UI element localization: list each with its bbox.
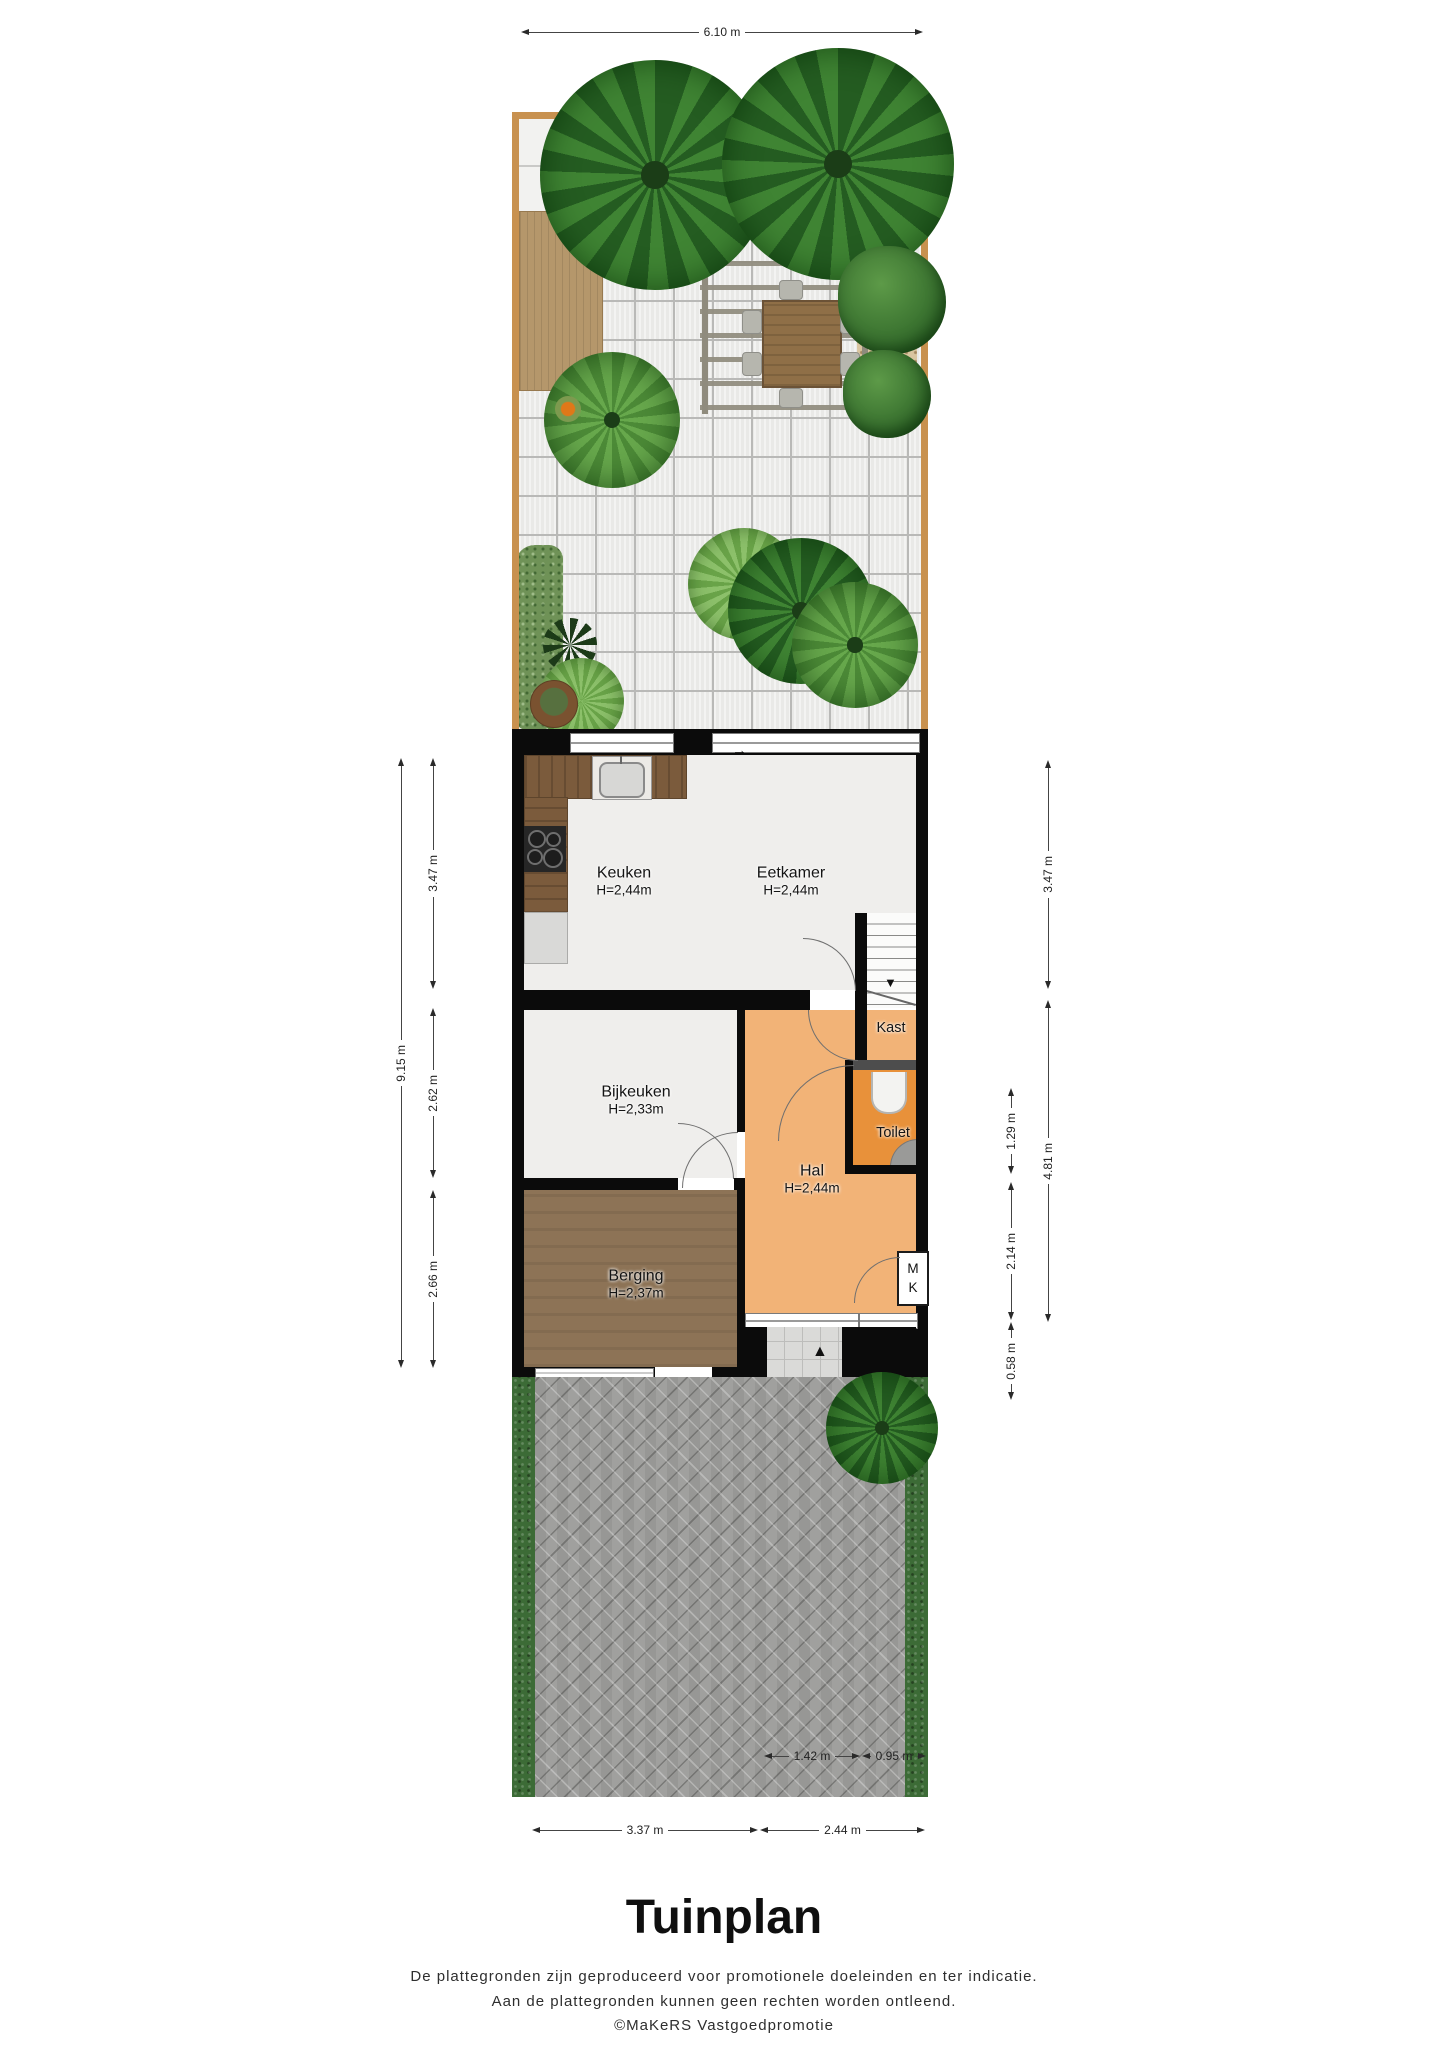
entrance-arrow-icon: ▲ xyxy=(812,1343,828,1361)
toilet-fixture xyxy=(871,1072,907,1114)
dimension-bottom-berging: 3.37 m xyxy=(532,1822,758,1838)
room-name: Keuken xyxy=(596,864,651,882)
berging-door-opening xyxy=(655,1367,712,1377)
arrow-left-icon xyxy=(521,29,529,35)
garden-dining-table xyxy=(762,300,842,388)
arrow-up-icon xyxy=(398,758,404,766)
garden-chair xyxy=(742,352,762,376)
dimension-top-width: 6.10 m xyxy=(521,24,923,40)
keuken-label: Keuken H=2,44m xyxy=(596,864,651,897)
eetkamer-label: Eetkamer H=2,44m xyxy=(757,864,825,897)
arrow-up-icon xyxy=(430,1008,436,1016)
arrow-down-icon xyxy=(398,1360,404,1368)
kast-label: Kast xyxy=(876,1020,905,1036)
stairs-down-arrow-icon: ▼ xyxy=(884,975,897,990)
toilet-bottom-wall xyxy=(845,1165,916,1174)
arrow-right-icon xyxy=(917,1827,925,1833)
room-name: Bijkeuken xyxy=(601,1083,670,1101)
dimension-right-upper: 3.47 m xyxy=(1040,760,1056,989)
dimension-left-keuken: 3.47 m xyxy=(425,758,441,989)
kitchen-cabinet xyxy=(524,912,568,964)
dimension-label: 6.10 m xyxy=(699,25,746,39)
house-left-wall xyxy=(512,755,524,1377)
disclaimer-line-2: Aan de plattegronden kunnen geen rechten… xyxy=(0,1993,1448,2010)
arrow-up-icon xyxy=(1008,1088,1014,1096)
arrow-up-icon xyxy=(1045,1000,1051,1008)
arrow-up-icon xyxy=(1045,760,1051,768)
dimension-label: 3.47 m xyxy=(1041,851,1055,898)
planter-pot xyxy=(530,680,578,728)
dimension-bottom-hal: 2.44 m xyxy=(760,1822,925,1838)
arrow-down-icon xyxy=(430,1170,436,1178)
shrub xyxy=(838,246,946,354)
room-name: Hal xyxy=(784,1162,839,1180)
dimension-label: 2.44 m xyxy=(819,1823,866,1837)
hal-left-wall-lower xyxy=(737,1185,745,1377)
dimension-label: 2.62 m xyxy=(426,1070,440,1117)
arrow-down-icon xyxy=(1045,1314,1051,1322)
garden-chair xyxy=(779,388,803,408)
kast-toilet-wall xyxy=(845,1060,916,1070)
dimension-right-lower: 4.81 m xyxy=(1040,1000,1056,1322)
arrow-left-icon xyxy=(760,1827,768,1833)
palm-tree xyxy=(826,1372,938,1484)
meterkast-label-m: M xyxy=(907,1260,918,1279)
berging-label: Berging H=2,37m xyxy=(608,1267,663,1300)
keuken-window xyxy=(570,733,674,753)
room-height: H=2,44m xyxy=(784,1180,839,1195)
arrow-up-icon xyxy=(1008,1322,1014,1330)
porch-side-wall xyxy=(842,1327,916,1377)
arrow-down-icon xyxy=(1008,1312,1014,1320)
dimension-left-bijkeuken: 2.62 m xyxy=(425,1008,441,1178)
dimension-right-hal: 2.14 m xyxy=(1003,1182,1019,1320)
arrow-down-icon xyxy=(1045,981,1051,989)
arrow-left-icon xyxy=(532,1827,540,1833)
burner xyxy=(543,848,563,868)
sink-tap xyxy=(620,756,622,764)
dimension-label: 3.37 m xyxy=(622,1823,669,1837)
arrow-down-icon xyxy=(1008,1166,1014,1174)
arrow-up-icon xyxy=(1008,1182,1014,1190)
garden-fence-left xyxy=(512,112,519,729)
keuken-bottom-wall xyxy=(512,990,810,1010)
room-height: H=2,33m xyxy=(601,1101,670,1116)
dimension-bottom-door: 1.42 m xyxy=(764,1748,860,1764)
kitchen-sink xyxy=(599,762,645,798)
palm-tree xyxy=(792,582,918,708)
arrow-down-icon xyxy=(430,1360,436,1368)
burner xyxy=(527,849,543,865)
dimension-left-berging: 2.66 m xyxy=(425,1190,441,1368)
hal-left-wall-upper xyxy=(737,990,745,1132)
dimension-left-outer: 9.15 m xyxy=(393,758,409,1368)
arrow-right-icon xyxy=(918,1753,926,1759)
bijkeuken-berging-wall xyxy=(512,1178,678,1190)
room-name: Kast xyxy=(876,1020,905,1036)
dimension-label: 3.47 m xyxy=(426,850,440,897)
flowering-plant xyxy=(555,396,581,422)
room-name: Toilet xyxy=(876,1125,910,1141)
dimension-label: 4.81 m xyxy=(1041,1138,1055,1185)
room-height: H=2,37m xyxy=(608,1285,663,1300)
dimension-label: 2.14 m xyxy=(1004,1228,1018,1275)
room-name: Berging xyxy=(608,1267,663,1285)
garden-chair xyxy=(779,280,803,300)
sliding-door-arrow-icon: → xyxy=(732,742,747,759)
meterkast-label-k: K xyxy=(908,1279,917,1298)
disclaimer-line-1: De plattegronden zijn geproduceerd voor … xyxy=(0,1968,1448,1985)
dimension-label: 9.15 m xyxy=(394,1040,408,1087)
entrance-porch xyxy=(767,1327,842,1377)
porch-side-wall xyxy=(745,1327,767,1377)
arrow-down-icon xyxy=(1008,1392,1014,1400)
arrow-right-icon xyxy=(915,29,923,35)
meterkast: M K xyxy=(897,1251,929,1306)
toilet-label: Toilet xyxy=(876,1125,910,1141)
arrow-left-icon xyxy=(764,1753,772,1759)
tuinplan-floorplan: 6.10 m ▼ xyxy=(0,0,1448,2048)
dimension-label: 1.29 m xyxy=(1004,1108,1018,1155)
dimension-label: 0.95 m xyxy=(871,1749,918,1763)
page-title: Tuinplan xyxy=(0,1890,1448,1945)
arrow-down-icon xyxy=(430,981,436,989)
dimension-label: 0.58 m xyxy=(1004,1338,1018,1385)
hal-label: Hal H=2,44m xyxy=(784,1162,839,1195)
room-height: H=2,44m xyxy=(757,882,825,897)
arrow-up-icon xyxy=(430,1190,436,1198)
arrow-right-icon xyxy=(750,1827,758,1833)
front-door-divider xyxy=(858,1313,860,1327)
hedge-left xyxy=(512,1377,535,1797)
burner xyxy=(528,830,546,848)
dimension-right-toilet: 1.29 m xyxy=(1003,1088,1019,1174)
dimension-label: 2.66 m xyxy=(426,1256,440,1303)
burner xyxy=(546,832,561,847)
arrow-right-icon xyxy=(852,1753,860,1759)
bijkeuken-label: Bijkeuken H=2,33m xyxy=(601,1083,670,1116)
dimension-bottom-sidelight: 0.95 m xyxy=(862,1748,926,1764)
arrow-up-icon xyxy=(430,758,436,766)
room-height: H=2,44m xyxy=(596,882,651,897)
dimension-label: 1.42 m xyxy=(789,1749,836,1763)
room-name: Eetkamer xyxy=(757,864,825,882)
palm-tree xyxy=(722,48,954,280)
dimension-right-entry: 0.58 m xyxy=(1003,1322,1019,1400)
copyright-line: ©MaKeRS Vastgoedpromotie xyxy=(0,2017,1448,2034)
shrub xyxy=(843,350,931,438)
arrow-left-icon xyxy=(862,1753,870,1759)
garden-chair xyxy=(742,310,762,334)
